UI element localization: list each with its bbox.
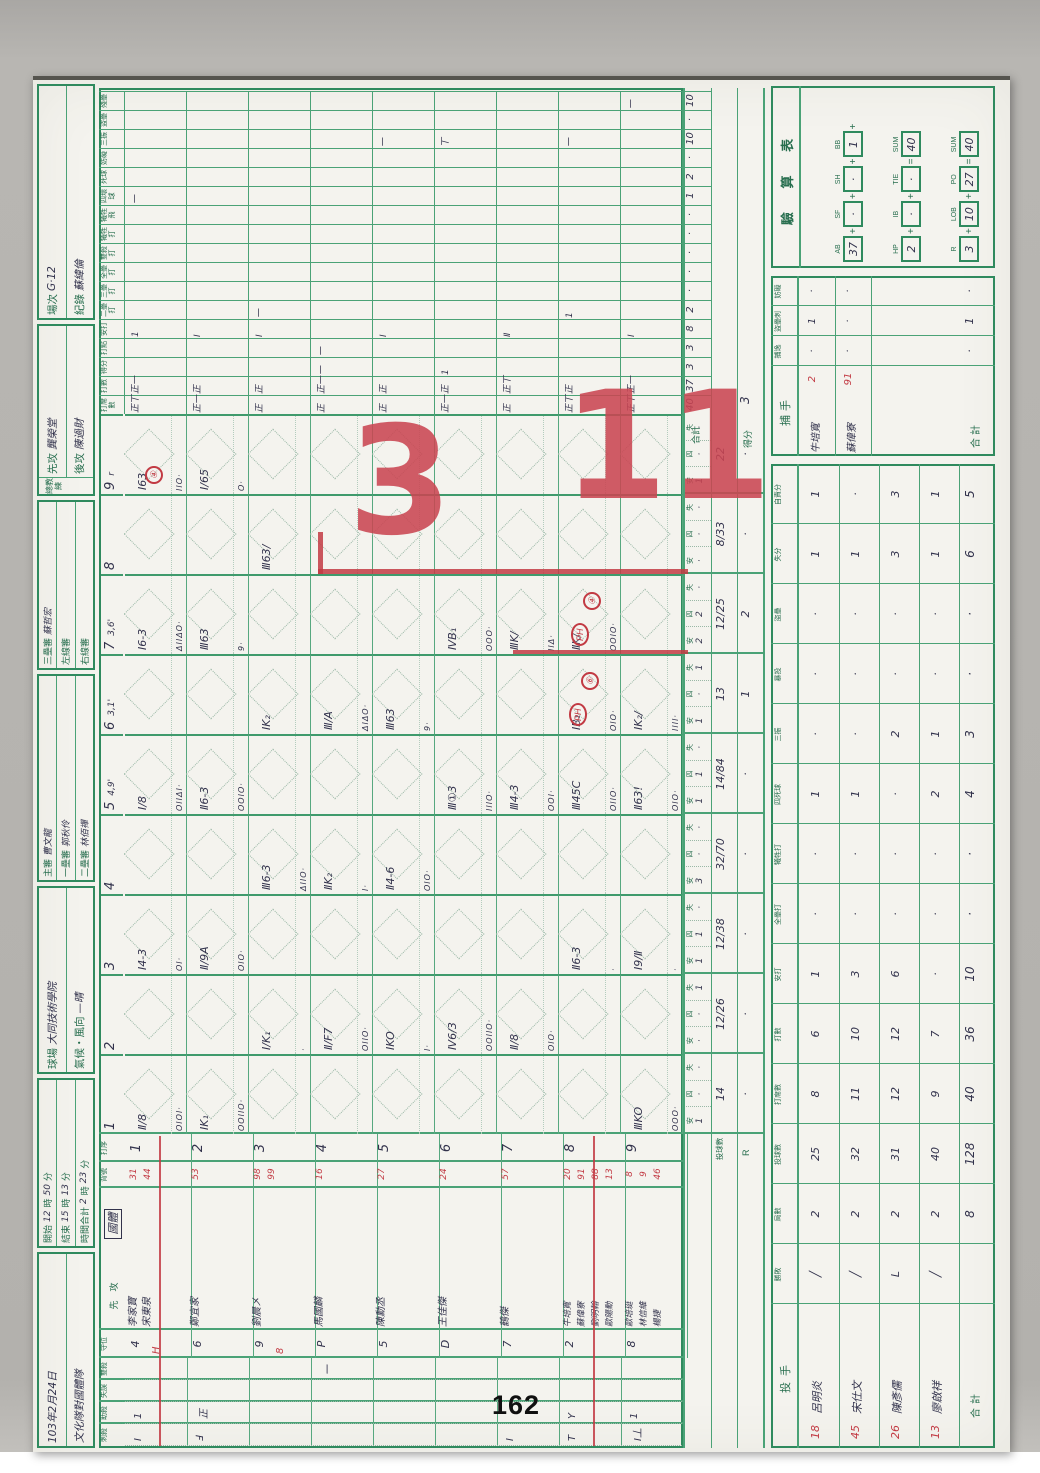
pitcher-total-value: · xyxy=(963,584,977,644)
handwritten-value: —晴 xyxy=(72,993,87,1014)
printed-label: 先 攻 xyxy=(107,1283,120,1310)
diamond xyxy=(372,589,423,640)
scoring-mark: Ⅰ9/Ⅱ xyxy=(633,951,644,970)
check-operator: + xyxy=(848,158,859,164)
pitcher-stat: 40 xyxy=(929,1124,942,1184)
pitch-sequence: OOO· xyxy=(485,626,494,651)
scoring-cell xyxy=(373,734,435,814)
inning-number: 2 xyxy=(103,1042,118,1050)
header-row: 三壘審蘇哲宏 xyxy=(39,502,57,668)
cell-guide xyxy=(543,416,544,494)
position-cell: 7 xyxy=(497,1330,564,1358)
printed-label: 時間合計 xyxy=(78,1207,91,1243)
cell-guide xyxy=(233,496,234,574)
scoring-mark: Ⅲ63 xyxy=(199,628,210,650)
diamond xyxy=(620,749,671,800)
cell-guide xyxy=(605,656,606,734)
uniform-number: 57 xyxy=(499,1161,513,1187)
scoring-mark: Ⅲ63 xyxy=(385,708,396,730)
left-col-header: 失誤 xyxy=(101,1380,125,1402)
check-label: SH xyxy=(834,174,843,184)
pitch-sequence: OOO· xyxy=(671,1106,680,1131)
scoring-mark: ⅢKO xyxy=(633,1107,644,1130)
scoring-cell xyxy=(249,654,311,734)
pitcher-col-header: 勝敗 xyxy=(775,1245,795,1304)
check-operator: + xyxy=(848,124,859,130)
stat-tally: 丅 xyxy=(441,128,451,147)
pitch-sequence: I· xyxy=(361,884,370,891)
check-value-box: · xyxy=(843,201,863,227)
player-name: 劉明翰 xyxy=(589,1185,603,1327)
catcher-stat: 1 xyxy=(807,306,818,336)
stat-total-value: · xyxy=(685,205,696,224)
header-row: 先攻龔榮堂 xyxy=(39,326,67,477)
pitcher-stat: 9 xyxy=(929,1064,942,1124)
diamond xyxy=(186,1069,237,1120)
scoring-cell xyxy=(249,894,311,974)
handwritten-value: 50 xyxy=(43,1184,53,1195)
handwritten-value: 龔榮堂 xyxy=(45,419,60,451)
stat-total-value: 10 xyxy=(685,129,696,148)
pitcher-stat: · xyxy=(849,704,862,764)
cell-guide xyxy=(667,976,668,1054)
header-row: 左線審 xyxy=(57,502,75,668)
diamond xyxy=(620,909,671,960)
catcher-col-header: 妨礙 xyxy=(775,277,795,306)
catcher-stat: · xyxy=(843,336,854,366)
red-inning-line-b xyxy=(318,569,688,574)
pitch-sequence: OOIO· xyxy=(237,782,246,811)
check-cell: AB37 xyxy=(834,236,863,262)
pitchcount-value: 13 xyxy=(714,654,727,734)
check-value-box: 40 xyxy=(901,131,921,157)
defense-mark: 1 xyxy=(133,1413,144,1419)
scan-background: 103年2月24日文化隊對國體隊開始12時50分結束15時13分時間合計2時23… xyxy=(0,0,1040,1452)
header-rows: 先攻龔榮堂後攻陳過財 xyxy=(39,326,93,477)
diamond xyxy=(496,509,547,560)
pitcher-row-line xyxy=(959,464,960,1448)
cell-guide xyxy=(171,576,172,654)
pitch-sequence: OIOI· xyxy=(175,1106,184,1131)
stat-tally: 一 xyxy=(255,299,265,318)
header-row: 紀錄蘇緯倫 xyxy=(67,86,94,318)
scoring-cell xyxy=(559,814,621,894)
name-col-header: 先 攻國體 xyxy=(101,1188,125,1330)
defense-mark: T xyxy=(567,1435,578,1441)
scoring-cell xyxy=(125,814,187,894)
pitcher-col-line xyxy=(771,763,995,764)
check-label: PO xyxy=(950,174,959,184)
pitcher-stat: · xyxy=(849,824,862,884)
stat-row-line xyxy=(558,91,559,414)
left-col-header: 刺殺 xyxy=(101,1424,125,1446)
check-value-box: 37 xyxy=(843,236,863,262)
player-names-cell: 鄭宜家 xyxy=(187,1182,254,1330)
diamond xyxy=(372,829,423,880)
pitcher-col-header: 局數 xyxy=(775,1185,795,1244)
uniform-numbers-cell: 8946 xyxy=(621,1160,688,1188)
position-sub: H xyxy=(151,1334,165,1354)
check-operator: + xyxy=(906,193,917,199)
scoring-cell xyxy=(373,974,435,1054)
catcher-name: 牛培寬 xyxy=(807,389,822,453)
diamond xyxy=(248,429,299,480)
cell-guide xyxy=(357,736,358,814)
summary-label: 失 xyxy=(685,814,695,841)
diamond xyxy=(558,829,609,880)
scoring-cell xyxy=(125,654,187,734)
pitch-sequence: OOI· xyxy=(547,790,556,812)
diamond xyxy=(372,989,423,1040)
scoring-mark: Ⅱ63! xyxy=(633,786,644,810)
stat-total-value: · xyxy=(685,148,696,167)
position-cell: P xyxy=(311,1330,378,1358)
summary-value: 2 xyxy=(695,627,705,654)
uniform-numbers-cell: 16 xyxy=(311,1160,378,1188)
summary-value: · xyxy=(695,1081,705,1108)
printed-label: 三壘審 xyxy=(41,638,54,665)
cell-guide xyxy=(419,576,420,654)
summary-line xyxy=(683,1105,711,1107)
cell-guide xyxy=(233,576,234,654)
scoring-cell xyxy=(373,894,435,974)
check-label: TIE xyxy=(892,174,901,185)
diamond xyxy=(434,589,485,640)
pitch-sequence: ΔIIO· xyxy=(299,867,308,891)
red-circle-annotation: ④ xyxy=(145,466,163,484)
summary-value: · xyxy=(695,547,705,574)
pitchcount-value: 32/70 xyxy=(714,814,727,894)
pitcher-number: 18 xyxy=(809,1420,822,1444)
pitcher-stat: 1 xyxy=(929,704,942,764)
stat-tally: 1 xyxy=(565,299,575,318)
cell-guide xyxy=(171,496,172,574)
pitcher-header-line xyxy=(797,464,799,1448)
diamond xyxy=(496,989,547,1040)
summary-label: 安 xyxy=(685,707,695,734)
cell-guide xyxy=(543,816,544,894)
summary-label: 安 xyxy=(685,1107,695,1134)
scoring-mark: ⅢK/ xyxy=(509,631,520,650)
diamond xyxy=(248,589,299,640)
scoring-cell xyxy=(187,494,249,574)
pitcher-total-value: · xyxy=(963,644,977,704)
diamond xyxy=(310,989,361,1040)
diamond xyxy=(372,1069,423,1120)
defense-cell xyxy=(125,1423,188,1446)
cell-guide xyxy=(357,576,358,654)
check-cell: PO27 xyxy=(950,166,979,192)
cell-guide xyxy=(295,736,296,814)
player-names-cell: 馬國麟 xyxy=(311,1182,378,1330)
pitchcount-value: 12/26 xyxy=(714,974,727,1054)
pitch-sequence: IIO· xyxy=(175,473,184,491)
cell-guide xyxy=(481,576,482,654)
uniform-number: 91 xyxy=(575,1161,589,1187)
pitcher-total-value: · xyxy=(963,884,977,944)
pitch-sequence: 9· xyxy=(237,641,246,651)
defense-cell xyxy=(249,1379,312,1402)
diamond xyxy=(248,1069,299,1120)
stat-tally: 一 xyxy=(317,337,327,356)
inning-header: 63,1' xyxy=(101,654,123,734)
summary-value: 1 xyxy=(695,654,705,681)
cell-guide xyxy=(357,976,358,1054)
uniform-number: 53 xyxy=(189,1161,203,1187)
pitcher-number: 45 xyxy=(849,1420,862,1444)
player-name: 王佳傑 xyxy=(437,1185,451,1327)
inning-number: 6 xyxy=(103,722,118,730)
check-label: SUM xyxy=(892,137,901,153)
defense-cell xyxy=(249,1357,312,1380)
pitcher-stat: · xyxy=(929,644,942,704)
inning-header: 3 xyxy=(101,894,123,974)
player-names-cell: 歐培珽林信維楊捷 xyxy=(621,1182,688,1330)
pitch-sequence: ΔIΔO· xyxy=(361,704,370,731)
pitcher-stat: L xyxy=(889,1244,902,1304)
cell-guide xyxy=(295,656,296,734)
summary-label: 四 xyxy=(685,601,695,628)
summary-label: 四 xyxy=(685,841,695,868)
cell-guide xyxy=(481,976,482,1054)
printed-label: 開始 xyxy=(41,1225,54,1243)
pitcher-col-line xyxy=(771,523,995,524)
cell-guide xyxy=(419,896,420,974)
pitcher-number: 26 xyxy=(889,1420,902,1444)
check-cell: BB1 xyxy=(834,131,863,157)
diamond xyxy=(558,989,609,1040)
check-value-box: · xyxy=(901,201,921,227)
pitch-sequence: OIIΔI· xyxy=(175,784,184,811)
run-label: R xyxy=(741,1150,751,1157)
printed-label: 時 xyxy=(59,1199,72,1208)
defense-cell xyxy=(621,1357,684,1380)
red-substitution-line-8 xyxy=(593,1136,595,1446)
pitcher-total-value: 3 xyxy=(963,704,977,764)
pitcher-stat: · xyxy=(889,824,902,884)
printed-label: 左線審 xyxy=(59,638,72,665)
summary-label: 安 xyxy=(685,947,695,974)
cell-guide xyxy=(357,896,358,974)
scoring-cell xyxy=(559,974,621,1054)
printed-label: 球場 xyxy=(45,1048,60,1069)
pitch-sequence: OIIO· xyxy=(361,1026,370,1051)
check-operator: + xyxy=(964,193,975,199)
pitch-sequence: OOIIO· xyxy=(485,1019,494,1051)
stat-tally: Ⅰ xyxy=(627,318,637,337)
cell-guide xyxy=(357,1056,358,1134)
diamond xyxy=(124,829,175,880)
uniform-number: 24 xyxy=(437,1161,451,1187)
pitcher-stat: 1 xyxy=(809,764,822,824)
player-name: 李家寶 xyxy=(127,1185,141,1327)
diamond xyxy=(186,589,237,640)
scoring-cell xyxy=(435,654,497,734)
pitch-sequence: OIO· xyxy=(547,1030,556,1052)
pitch-row-line xyxy=(711,88,712,1448)
summary-value: 1 xyxy=(695,787,705,814)
summary-value: · xyxy=(695,814,705,841)
inning-header: 73,6' xyxy=(101,574,123,654)
pitch-sequence: I· xyxy=(423,1044,432,1051)
uniform-number: 44 xyxy=(141,1161,155,1187)
stat-col-header: 打席數 xyxy=(101,396,125,414)
uniform-numbers-cell: 57 xyxy=(497,1160,564,1188)
inning-note: 3,6' xyxy=(107,619,117,636)
cell-guide xyxy=(357,656,358,734)
check-value-box: 3 xyxy=(959,236,979,262)
diamond xyxy=(620,589,671,640)
cell-guide xyxy=(543,496,544,574)
run-value: 2 xyxy=(739,574,752,654)
header-rows: 開始12時50分結束15時13分時間合計2時23分 xyxy=(39,1080,93,1246)
defense-cell xyxy=(187,1379,250,1402)
red-substitution-line-1 xyxy=(159,1136,161,1446)
cell-guide xyxy=(171,736,172,814)
diamond xyxy=(372,909,423,960)
scoring-cell xyxy=(125,494,187,574)
player-names-cell: 鶴傑 xyxy=(497,1182,564,1330)
header-row: 場次G·12 xyxy=(39,86,67,318)
pitcher-stat: 1 xyxy=(929,524,942,584)
summary-line xyxy=(683,865,711,867)
scoring-cell xyxy=(249,734,311,814)
scoring-mark: Ⅱ/F7 xyxy=(323,1028,334,1050)
cell-guide xyxy=(295,896,296,974)
check-value-box: 1 xyxy=(843,131,863,157)
pitch-sequence: OOIO· xyxy=(609,622,618,651)
uniform-numbers-cell: 53 xyxy=(187,1160,254,1188)
printed-label: 分 xyxy=(78,1160,91,1169)
uniform-number: 8 xyxy=(623,1161,637,1187)
scoring-cell xyxy=(497,654,559,734)
scoring-mark: ⅣB₁ xyxy=(447,628,458,650)
stat-tally: 1 xyxy=(441,356,451,375)
summary-label: 四 xyxy=(685,681,695,708)
stat-tally: 一 xyxy=(131,185,141,204)
printed-label: 場次 xyxy=(45,294,60,315)
pitcher-stat: · xyxy=(929,824,942,884)
printed-label: 時 xyxy=(78,1186,91,1195)
inning-number: 5 xyxy=(103,802,118,810)
summary-value: 1 xyxy=(695,947,705,974)
cell-guide xyxy=(233,976,234,1054)
scoring-cell xyxy=(187,654,249,734)
inning-header: 9r xyxy=(101,414,123,494)
catcher-name: 蘇偉寮 xyxy=(843,389,858,453)
pitcher-stat: 1 xyxy=(809,944,822,1004)
cell-guide xyxy=(481,896,482,974)
order-cell: 3 xyxy=(249,1134,316,1162)
pitcher-stat: 3 xyxy=(849,944,862,1004)
diamond xyxy=(496,429,547,480)
red-inning-line-a xyxy=(513,650,688,654)
uniform-number: 16 xyxy=(313,1161,327,1187)
handwritten-value: G·12 xyxy=(46,266,58,291)
summary-value: 1 xyxy=(695,1107,705,1134)
cell-guide xyxy=(233,736,234,814)
check-cell: SUM40 xyxy=(892,131,921,157)
stat-total-value: 2 xyxy=(685,167,696,186)
pitcher-stat: 31 xyxy=(889,1124,902,1184)
cell-guide xyxy=(171,976,172,1054)
catcher-total-value: 1 xyxy=(963,306,976,336)
stat-col-header: 安打 xyxy=(101,320,125,338)
check-cell: TIE· xyxy=(892,166,921,192)
stat-tally: 一 xyxy=(627,90,637,109)
catcher-stat: · xyxy=(843,306,854,336)
cell-guide xyxy=(667,576,668,654)
summary-value: 1 xyxy=(695,974,705,1001)
cell-guide xyxy=(419,976,420,1054)
printed-label: 右線審 xyxy=(78,638,91,665)
cell-guide xyxy=(171,896,172,974)
pitcher-stat: 12 xyxy=(889,1064,902,1124)
uniform-number: 31 xyxy=(127,1161,141,1187)
inning-header: 8 xyxy=(101,494,123,574)
defense-cell xyxy=(311,1379,374,1402)
pitcher-stat: 6 xyxy=(809,1004,822,1064)
defense-cell xyxy=(435,1401,498,1424)
stat-col-header: 妨礙 xyxy=(101,149,125,167)
stat-col-header: 盜壘 xyxy=(101,111,125,129)
cell-guide xyxy=(233,656,234,734)
header-row: 二壘審林佰禪 xyxy=(76,676,93,880)
run-value: · xyxy=(739,1054,752,1134)
pitchcount-value: 14 xyxy=(714,1054,727,1134)
diamond xyxy=(496,589,547,640)
inning-note: 3,1' xyxy=(107,699,117,716)
summary-value: · xyxy=(695,734,705,761)
uniform-number: 9 xyxy=(637,1161,651,1187)
inning-number: 1 xyxy=(103,1122,118,1130)
check-cell: R3 xyxy=(950,236,979,262)
pitcher-col-line xyxy=(771,1183,995,1184)
pitcher-stat: · xyxy=(849,884,862,944)
check-label: BB xyxy=(834,140,843,149)
scoring-cell xyxy=(311,894,373,974)
stat-tally: 正 xyxy=(193,375,203,394)
pitcher-stat: ╱ xyxy=(809,1244,822,1304)
check-operator: + xyxy=(964,228,975,234)
stat-tally: 一 xyxy=(317,356,327,375)
scoring-mark: Ⅰ/65 xyxy=(199,469,210,490)
pitcher-stat: 11 xyxy=(849,1064,862,1124)
check-operator: + xyxy=(906,228,917,234)
catcher-row-line xyxy=(871,276,872,456)
pitcher-col-line xyxy=(771,883,995,884)
pitcher-stat: · xyxy=(809,704,822,764)
handwritten-value: 林佰禪 xyxy=(78,820,91,847)
diamond xyxy=(310,669,361,720)
defense-mark: 一 xyxy=(319,1365,334,1375)
pitcher-col-header: 四死球 xyxy=(775,765,795,824)
stat-tally: Ⅱ xyxy=(503,318,513,337)
check-cell: LOB10 xyxy=(950,201,979,227)
cell-guide xyxy=(419,816,420,894)
pitcher-col-header: 打數 xyxy=(775,1005,795,1064)
pitcher-total-value: 4 xyxy=(963,764,977,824)
catcher-title: 捕手 xyxy=(777,366,793,456)
pitcher-total-value: 40 xyxy=(963,1064,977,1124)
stat-col-header: 死球 xyxy=(101,168,125,186)
scoring-cell xyxy=(249,494,311,574)
handwritten-value: 文化隊對國體隊 xyxy=(72,1370,87,1444)
page-number: 162 xyxy=(492,1390,540,1421)
red-circle-annotation: ⑥ xyxy=(581,672,599,690)
rows-bottom-line xyxy=(763,88,765,1448)
pitch-sequence: IIII· xyxy=(671,714,680,731)
